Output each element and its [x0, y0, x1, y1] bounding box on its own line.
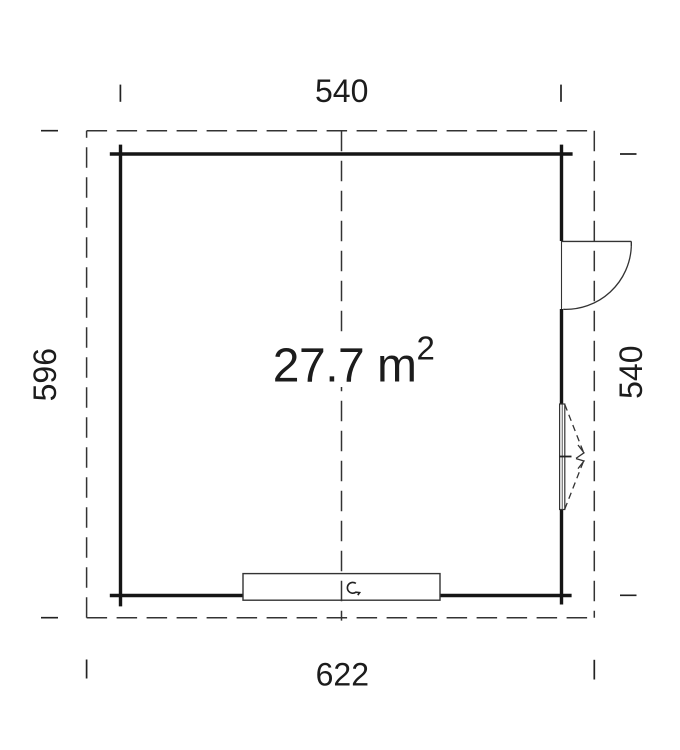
- svg-text:2: 2: [417, 330, 435, 367]
- svg-text:540: 540: [315, 73, 368, 109]
- svg-text:596: 596: [27, 348, 63, 401]
- svg-text:540: 540: [613, 346, 649, 399]
- svg-text:622: 622: [316, 656, 369, 692]
- svg-text:27.7 m: 27.7 m: [273, 340, 417, 393]
